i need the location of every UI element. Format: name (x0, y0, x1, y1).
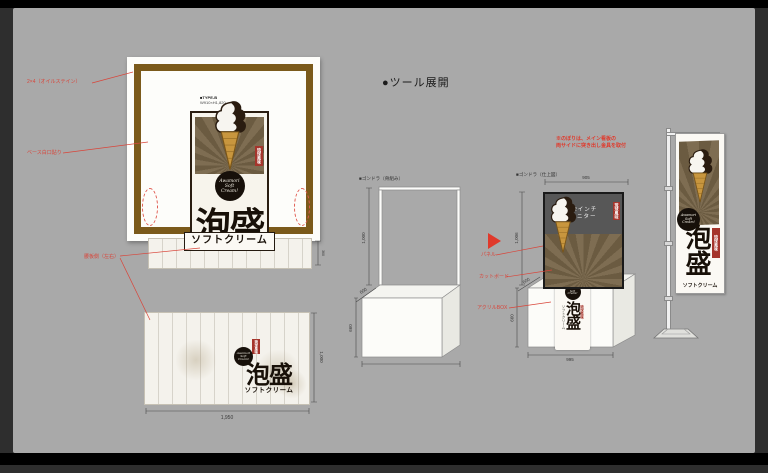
dim-counter-height: 660 (510, 314, 515, 322)
nobori-flag: Awamori Soft Cream! 泡盛 琉球風味 ソフトクリーム (675, 133, 725, 294)
dim-counter-height: 660 (348, 324, 353, 332)
counter-front-banner: Awamori Soft Cream! ソフトクリーム 泡盛 琉球風味 (555, 282, 590, 350)
banner-title: 泡盛 (565, 301, 580, 329)
nobori-pole (666, 128, 671, 337)
badge-line3: Cream! (221, 189, 238, 194)
pole-joint (664, 241, 673, 246)
mount-hole-right (294, 188, 310, 226)
letterbox-bottom (0, 453, 768, 465)
monitor-seal: 琉球風味 (613, 202, 620, 220)
panel-logo-seal: 琉球風味 (252, 339, 260, 354)
finished-counter-diagram: ■ゴンドラ（仕上図） 905 1,006 600 660 995 Awamori… (512, 168, 658, 382)
flag-subtitle: ソフトクリーム (676, 282, 724, 289)
badge-line3: Cream! (568, 293, 578, 296)
frame-counter-diagram: ■ゴンドラ（骨組み） 1,000 600 660 (352, 168, 487, 370)
nobori-base (652, 322, 702, 340)
annotation-side-panel: 腰板側（左右） (84, 253, 119, 260)
softserve-cone-icon (545, 194, 581, 258)
page-heading: ●ツール展開 (382, 74, 450, 90)
softserve-cone-icon (683, 137, 717, 217)
softserve-cone-icon (208, 93, 252, 181)
nobori-note: ※のぼりは、メイン看板の 両サイドに突き出し金具を取付 (556, 136, 626, 149)
banner-seal-text: 琉球風味 (580, 305, 584, 319)
dim-frame-height: 1,000 (361, 232, 366, 244)
pole-joint (664, 186, 673, 191)
dim-panel-width: 1,950 (221, 415, 234, 421)
mount-hole-left (142, 188, 158, 226)
sign-poster: 琉球風味 Awamori Soft Cream! 泡盛 ソフトクリーム (190, 111, 269, 238)
finished-counter-label: ■ゴンドラ（仕上図） (516, 171, 560, 178)
counter-front-face (362, 298, 442, 357)
arrow-indicator (488, 233, 501, 249)
dim-bottom: 995 (566, 357, 574, 362)
brand-badge: Awamori Soft Cream! (215, 171, 245, 201)
annotation-base: ベース白口貼り (27, 149, 62, 156)
frame-counter-label: ■ゴンドラ（骨組み） (359, 175, 403, 182)
banner-title-row: ソフトクリーム 泡盛 琉球風味 (562, 301, 584, 330)
nobori-note-line1: ※のぼりは、メイン看板の (556, 136, 626, 143)
dim-strip-height: 360 (321, 250, 325, 256)
nobori-group: Awamori Soft Cream! 泡盛 琉球風味 ソフトクリーム (652, 116, 757, 351)
frame-top-bar (379, 187, 460, 190)
flag-title: 泡盛 (683, 224, 709, 276)
back-wood-panel: 琉球風味 Awamori Soft Cream! 泡盛 ソフトクリーム (144, 312, 310, 405)
flag-seal: 琉球風味 (712, 228, 720, 258)
pole-joint (664, 296, 673, 301)
annotation-lumber: 2×4（オイルステイン） (27, 78, 80, 85)
subtitle-banner: ソフトクリーム (184, 232, 275, 251)
ryukyu-seal: 琉球風味 (255, 146, 263, 166)
main-sign-board: ■TYPE-B W910×H1,820 琉球風味 Awamori Soft Cr… (127, 57, 320, 241)
letterbox-top (0, 0, 768, 8)
counter-side-face (442, 285, 460, 357)
dim-depth: 600 (359, 286, 368, 295)
dim-top: 905 (582, 175, 590, 180)
nobori-note-line2: 両サイドに突き出し金具を取付 (556, 143, 626, 150)
slide-canvas: ■TYPE-B W910×H1,820 琉球風味 Awamori Soft Cr… (13, 8, 755, 453)
frame-post-left (379, 190, 382, 285)
panel-logo-subtitle: ソフトクリーム (209, 384, 329, 394)
dim-height: 1,006 (514, 232, 519, 244)
frame-post-right (457, 190, 460, 285)
monitor-panel: 42インチ モニター 琉球風味 (543, 192, 624, 289)
